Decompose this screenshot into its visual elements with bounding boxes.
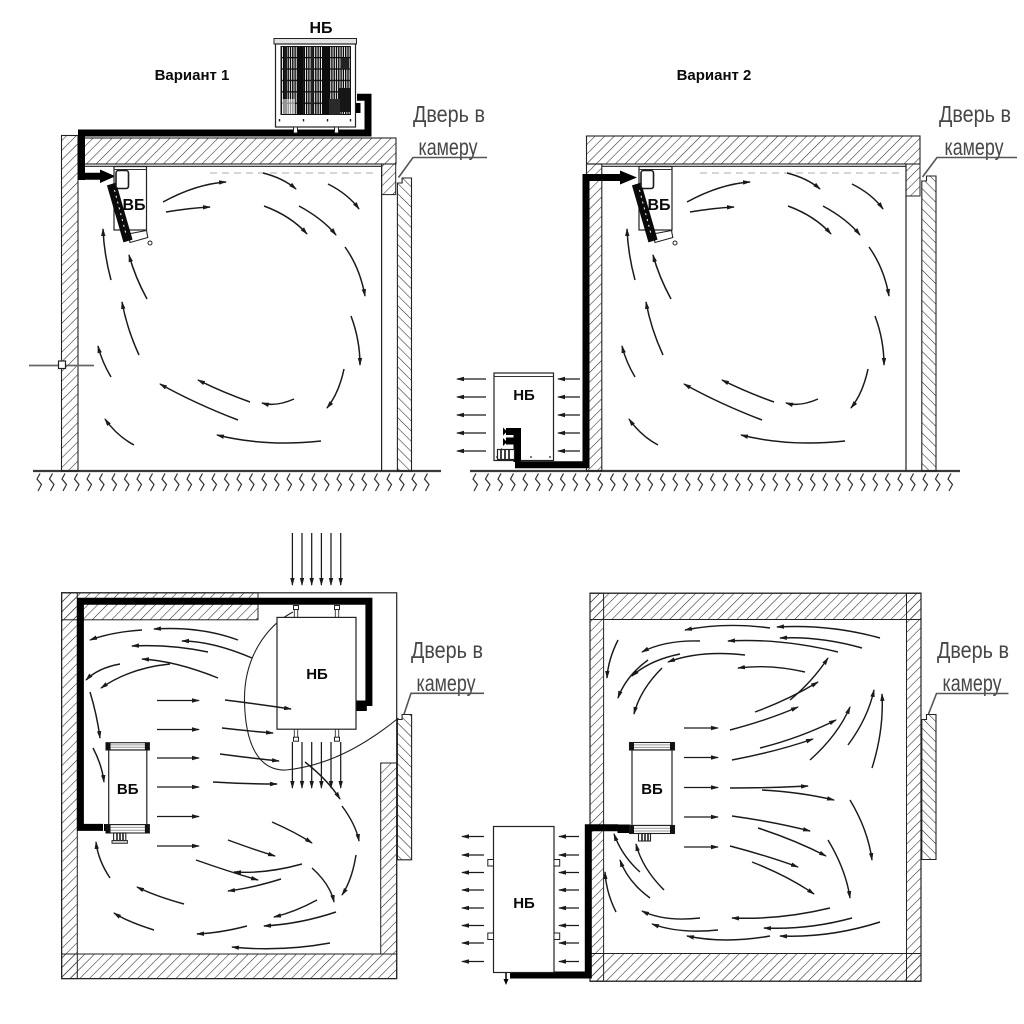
svg-text:ВБ: ВБ <box>647 197 670 214</box>
svg-text:ВБ: ВБ <box>117 781 139 798</box>
svg-text:ВБ: ВБ <box>122 197 145 214</box>
svg-text:Дверь в: Дверь в <box>939 101 1011 127</box>
svg-text:камеру: камеру <box>417 670 476 696</box>
svg-text:ВБ: ВБ <box>641 781 663 798</box>
svg-text:камеру: камеру <box>945 134 1004 160</box>
svg-text:Вариант 1: Вариант 1 <box>155 67 230 84</box>
svg-text:Дверь в: Дверь в <box>413 101 485 127</box>
svg-text:Дверь в: Дверь в <box>937 637 1009 663</box>
svg-text:Вариант 2: Вариант 2 <box>677 67 752 84</box>
svg-text:НБ: НБ <box>513 895 535 912</box>
svg-text:камеру: камеру <box>943 670 1002 696</box>
svg-text:НБ: НБ <box>306 666 328 683</box>
svg-text:Дверь в: Дверь в <box>411 637 483 663</box>
svg-text:камеру: камеру <box>419 134 478 160</box>
svg-text:НБ: НБ <box>309 20 332 37</box>
svg-text:НБ: НБ <box>513 387 535 404</box>
